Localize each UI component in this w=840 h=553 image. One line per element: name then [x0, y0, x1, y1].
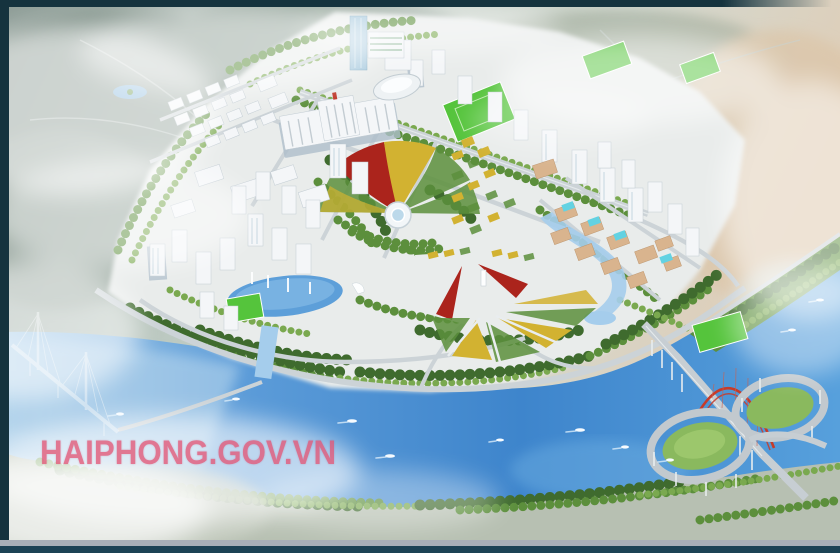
frame-top-bar — [0, 0, 840, 7]
screenshot-frame: HAIPHONG.GOV.VN — [0, 0, 840, 553]
frame-left-bar — [0, 0, 9, 553]
monument — [481, 270, 486, 286]
watermark-text: HAIPHONG.GOV.VN — [40, 436, 334, 470]
frame-bottom-bar — [0, 546, 840, 553]
